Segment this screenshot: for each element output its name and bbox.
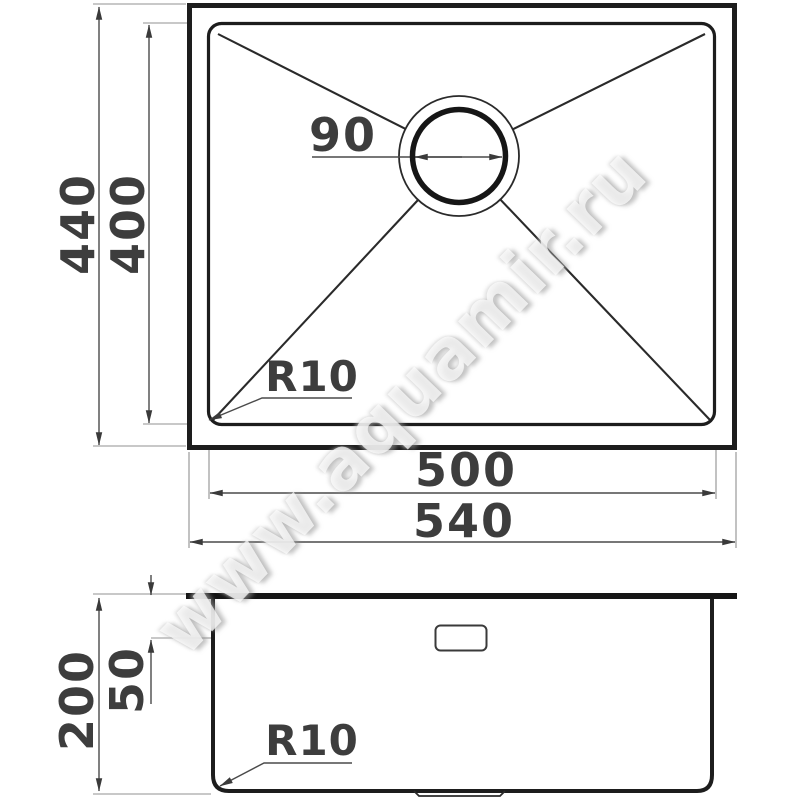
overflow-knockout xyxy=(436,626,487,651)
dim-label-inner-height: 400 xyxy=(105,173,151,275)
dim-label-total-depth: 200 xyxy=(54,649,100,751)
dim-label-overflow-offset: 50 xyxy=(104,646,150,714)
dim-label-outer-width: 540 xyxy=(413,498,515,544)
dim-label-outer-height: 440 xyxy=(55,173,101,275)
side-view xyxy=(99,575,737,796)
dim-label-corner-radius-bottom: R10 xyxy=(265,720,359,762)
dim-label-corner-radius-top: R10 xyxy=(265,356,359,398)
dim-label-drain-diameter: 90 xyxy=(309,112,377,158)
dim-label-inner-width: 500 xyxy=(415,447,517,493)
drain-flange-circle xyxy=(399,96,519,216)
sink-technical-drawing: 440 400 90 R10 500 540 200 50 R10 www.aq… xyxy=(0,0,800,800)
